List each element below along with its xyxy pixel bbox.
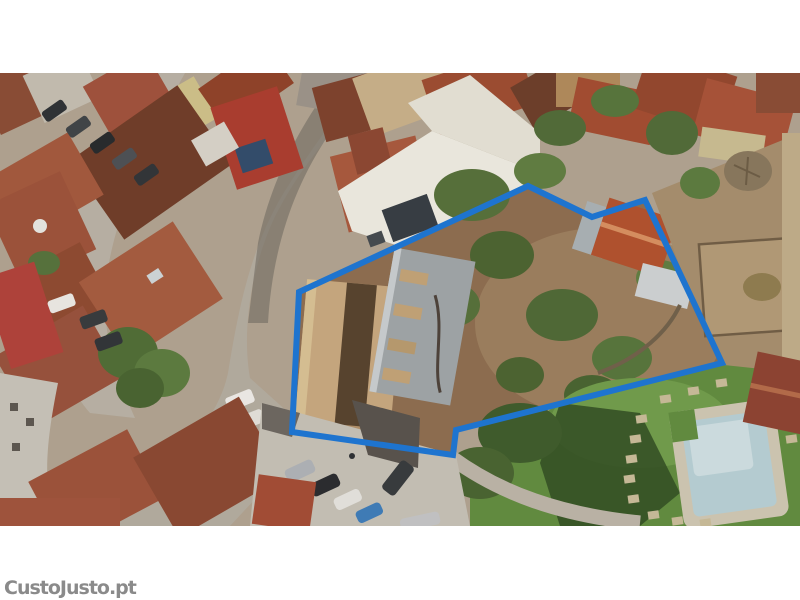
aerial-photo (0, 73, 800, 526)
screenshot-canvas: CustoJusto.pt (0, 0, 800, 600)
watermark-text: CustoJusto.pt (4, 577, 137, 599)
photo-tint (0, 73, 800, 526)
watermark: CustoJusto.pt (2, 574, 302, 600)
